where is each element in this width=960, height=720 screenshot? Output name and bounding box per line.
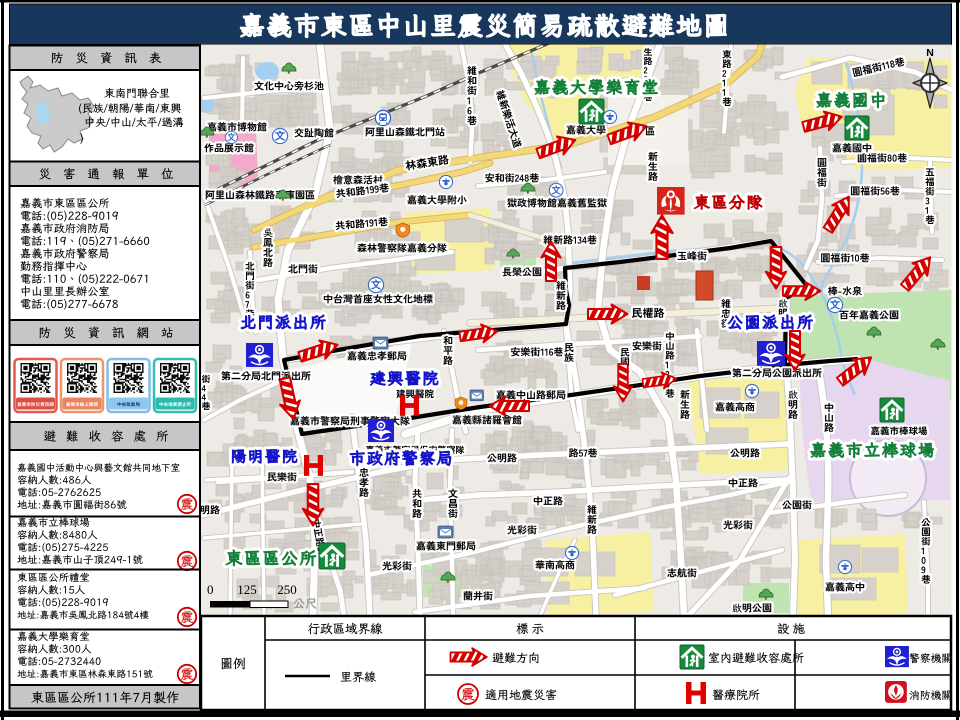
svg-text:125: 125 bbox=[237, 582, 257, 597]
svg-text:N: N bbox=[926, 47, 934, 59]
svg-text:250: 250 bbox=[277, 582, 297, 597]
svg-text:0: 0 bbox=[207, 582, 214, 597]
